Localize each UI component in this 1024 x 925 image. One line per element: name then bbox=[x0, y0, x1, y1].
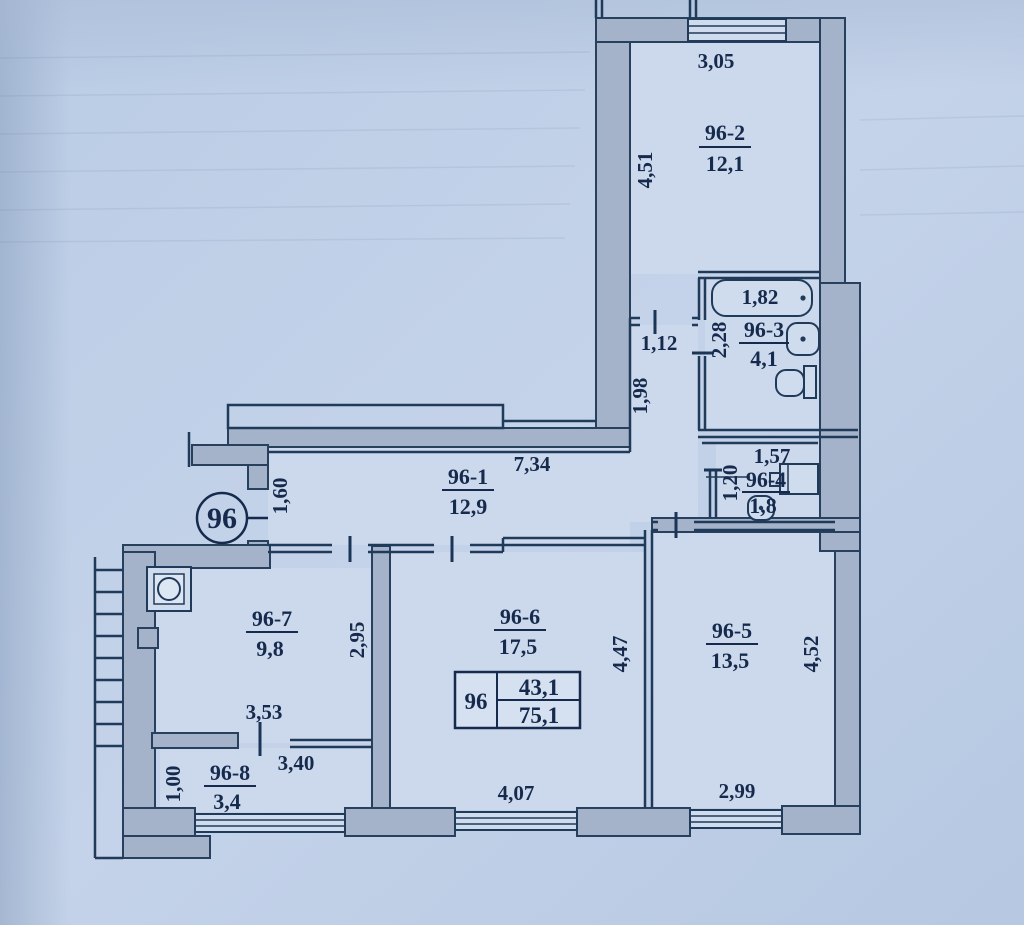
wall-96-2-right bbox=[820, 18, 845, 288]
pier-bottom-left bbox=[123, 808, 195, 836]
wall-96-6-96-7-divider bbox=[372, 546, 390, 810]
dim-96-6-height: 4,47 bbox=[608, 636, 632, 673]
table-total-area: 75,1 bbox=[519, 703, 559, 728]
hall-nook-floor bbox=[630, 447, 698, 522]
room-area-96-8: 3,4 bbox=[213, 789, 241, 814]
table-unit-number: 96 bbox=[465, 689, 488, 714]
window-96-6 bbox=[455, 812, 577, 830]
room-id-96-7: 96-7 bbox=[252, 606, 292, 631]
dim-96-7-height: 2,95 bbox=[345, 622, 369, 659]
dim-96-3-tub: 1,82 bbox=[742, 285, 779, 309]
pier-bottom-mid1 bbox=[345, 808, 455, 836]
window-96-8 bbox=[195, 814, 345, 832]
room-area-96-5: 13,5 bbox=[711, 648, 750, 673]
room-id-96-8: 96-8 bbox=[210, 760, 250, 785]
pier-bottom-right bbox=[782, 806, 860, 834]
floor-plan-scan: 96 96 43,1 75,1 3,05 4,51 96-2 12,1 1,82… bbox=[0, 0, 1024, 925]
room-area-96-6: 17,5 bbox=[499, 634, 538, 659]
dim-96-8-width: 3,40 bbox=[278, 751, 315, 775]
step-bottom-left bbox=[123, 836, 210, 858]
dim-96-5-width: 2,99 bbox=[719, 779, 756, 803]
room-area-96-4: 1,8 bbox=[749, 493, 777, 518]
dim-96-3-height: 2,28 bbox=[707, 322, 731, 359]
dim-hall-pass-width: 1,12 bbox=[641, 331, 678, 355]
room-id-96-1: 96-1 bbox=[448, 464, 488, 489]
room-area-96-2: 12,1 bbox=[706, 151, 745, 176]
floor-plan-drawing: 96 96 43,1 75,1 3,05 4,51 96-2 12,1 1,82… bbox=[0, 0, 1024, 925]
dim-96-8-height: 1,00 bbox=[161, 766, 185, 803]
sink-icon bbox=[787, 323, 819, 355]
wall-entry-jamb-upper bbox=[248, 465, 268, 489]
dim-96-5-height: 4,52 bbox=[799, 636, 823, 673]
dim-96-1-width: 7,34 bbox=[514, 452, 551, 476]
area-table: 96 43,1 75,1 bbox=[455, 672, 580, 728]
dim-96-1-entry: 1,60 bbox=[268, 478, 292, 515]
room-area-96-3: 4,1 bbox=[750, 346, 778, 371]
wall-vent-bump bbox=[138, 628, 158, 648]
table-living-area: 43,1 bbox=[519, 675, 559, 700]
window-96-2 bbox=[688, 19, 786, 41]
room-area-96-1: 12,9 bbox=[449, 494, 488, 519]
room-id-96-6: 96-6 bbox=[500, 604, 540, 629]
unit-number-label: 96 bbox=[207, 502, 237, 535]
room-id-96-3: 96-3 bbox=[744, 317, 784, 342]
dim-96-2-width: 3,05 bbox=[698, 49, 735, 73]
paper-left-shadow bbox=[0, 0, 70, 925]
dim-96-4-width: 1,57 bbox=[754, 444, 791, 468]
dim-hall-pass-len: 1,98 bbox=[628, 378, 652, 415]
room-96-8-floor bbox=[160, 748, 372, 812]
wall-entry-top bbox=[192, 445, 268, 465]
room-id-96-4: 96-4 bbox=[746, 467, 786, 492]
wall-corridor-top bbox=[228, 428, 630, 447]
paper-top-shadow bbox=[0, 0, 1024, 90]
stove-icon bbox=[147, 567, 191, 611]
toilet-icon-96-3 bbox=[776, 366, 816, 398]
wall-96-5-right bbox=[835, 551, 860, 811]
wall-right-middle bbox=[820, 283, 860, 551]
wall-96-8-top-left bbox=[152, 733, 238, 748]
dim-96-6-width: 4,07 bbox=[498, 781, 535, 805]
dim-96-4-door: 1,20 bbox=[718, 465, 742, 502]
wall-top-block-left bbox=[596, 18, 630, 430]
pier-bottom-mid2 bbox=[577, 808, 690, 836]
dim-96-2-height: 4,51 bbox=[633, 152, 657, 189]
room-area-96-7: 9,8 bbox=[256, 636, 284, 661]
room-id-96-5: 96-5 bbox=[712, 618, 752, 643]
dim-96-7-width: 3,53 bbox=[246, 700, 283, 724]
window-96-5 bbox=[690, 810, 782, 828]
room-id-96-2: 96-2 bbox=[705, 120, 745, 145]
